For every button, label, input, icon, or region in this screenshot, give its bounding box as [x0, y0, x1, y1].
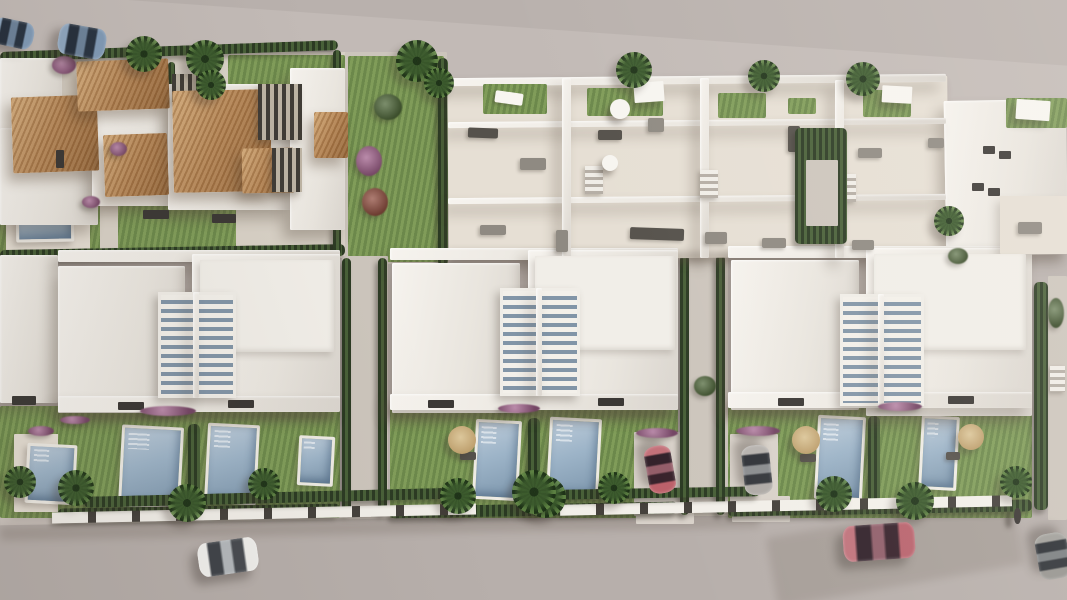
- compoundB-window-1: [428, 400, 454, 408]
- terrace-table-2: [598, 130, 622, 140]
- palm-15: [896, 482, 934, 520]
- hedge-AB-1: [342, 258, 351, 514]
- bougainvillea-3: [82, 196, 100, 208]
- palm-17: [512, 470, 556, 514]
- bougainvillea-4: [356, 146, 382, 176]
- apartment-wall-v2: [700, 78, 709, 258]
- compoundC-window-2: [948, 396, 974, 404]
- terrace-dining-long: [630, 227, 684, 241]
- pedestrian: [1014, 508, 1021, 524]
- compoundC-party-wall: [878, 294, 884, 406]
- bougainvillea-8: [498, 404, 540, 413]
- compoundA-pool-small: [297, 435, 336, 487]
- terrace-table-3: [648, 118, 664, 132]
- roof-lawn-4: [788, 98, 816, 114]
- palm-rooftop-3: [846, 62, 880, 96]
- terrace-sofa-6: [852, 240, 874, 250]
- parasol-3: [958, 424, 984, 450]
- roof-umbrella: [610, 99, 630, 119]
- car-driveway-gray: [740, 444, 773, 497]
- compoundC-window-1: [778, 398, 804, 406]
- roof-canopy-2: [882, 85, 913, 104]
- bush-green-1: [374, 94, 402, 120]
- hedge-AB-2: [378, 258, 387, 514]
- hedge-BC-2: [716, 255, 725, 515]
- tower-canopy: [1015, 99, 1050, 121]
- villa3-pergola: [258, 84, 302, 140]
- aerial-development-render: [0, 0, 1067, 600]
- bougainvillea-9: [636, 428, 678, 438]
- bougainvillea-11: [878, 402, 922, 411]
- terrace-sofa-4: [705, 232, 727, 244]
- apartment-stairs-2: [700, 170, 718, 198]
- compoundB-party-wall: [536, 288, 542, 396]
- palm-16: [1000, 466, 1032, 498]
- parasol-1: [448, 426, 476, 454]
- compoundC-pool-hedge: [868, 416, 880, 502]
- palm-5: [424, 68, 454, 98]
- palm-6: [934, 206, 964, 236]
- bougainvillea-5: [28, 426, 54, 436]
- terrace-sofa-5: [762, 238, 786, 248]
- palm-rooftop-1: [616, 52, 652, 88]
- parasol-2: [792, 426, 820, 454]
- palm-14: [816, 476, 852, 512]
- stairs-east: [1050, 366, 1065, 392]
- compoundA-front-wall: [58, 396, 340, 412]
- palm-10: [248, 468, 280, 500]
- terrace-sofa-1: [520, 158, 546, 170]
- tower-window-2: [999, 151, 1011, 159]
- bougainvillea-7: [60, 416, 90, 424]
- terrace-table-6: [928, 138, 944, 148]
- terrace-sofa-2: [480, 225, 506, 235]
- bush-green-3: [694, 376, 716, 396]
- bougainvillea-1: [52, 56, 76, 74]
- hedge-BC-1: [680, 255, 689, 515]
- palm-rooftop-2: [748, 60, 780, 92]
- villa3-window: [212, 214, 236, 223]
- villa-west-body: [0, 255, 58, 403]
- apartment-stairs-1: [585, 166, 603, 194]
- tower-window-3: [972, 183, 984, 191]
- compoundA-window-2: [228, 400, 254, 408]
- villa4-pergola: [272, 148, 302, 192]
- parasol-3-chairs: [946, 452, 960, 460]
- palm-9: [168, 484, 206, 522]
- tower-window-4: [988, 188, 1000, 196]
- hedge-east-column: [1034, 282, 1048, 510]
- terrace-round-table: [602, 155, 618, 171]
- bougainvillea-2: [110, 142, 127, 156]
- villa1-window: [56, 150, 64, 168]
- villa4-roof: [314, 112, 348, 158]
- bush-green-4: [1048, 298, 1064, 328]
- terrace-table-5: [858, 148, 882, 158]
- compoundA-party-wall: [193, 292, 199, 398]
- tower-terrace-set: [1018, 222, 1042, 234]
- palm-13: [598, 472, 630, 504]
- courtyard-path: [806, 160, 838, 226]
- palm-11: [440, 478, 476, 514]
- villa-west-window: [12, 396, 36, 405]
- parasol-2-chairs: [800, 454, 816, 462]
- car-road-red: [842, 522, 916, 563]
- palm-7: [4, 466, 36, 498]
- terrace-sofa-3: [556, 230, 568, 252]
- bush-green-2: [948, 248, 968, 264]
- terrace-table-1: [468, 127, 498, 138]
- villa2-window: [143, 210, 169, 219]
- bush-red-1: [362, 188, 388, 216]
- compoundB-window-2: [598, 398, 624, 406]
- palm-3: [196, 70, 226, 100]
- roof-lawn-3: [718, 93, 766, 118]
- palm-8: [58, 470, 94, 506]
- bougainvillea-6: [140, 406, 196, 416]
- bougainvillea-10: [736, 426, 780, 436]
- palm-1: [126, 36, 162, 72]
- tower-window-1: [983, 146, 995, 154]
